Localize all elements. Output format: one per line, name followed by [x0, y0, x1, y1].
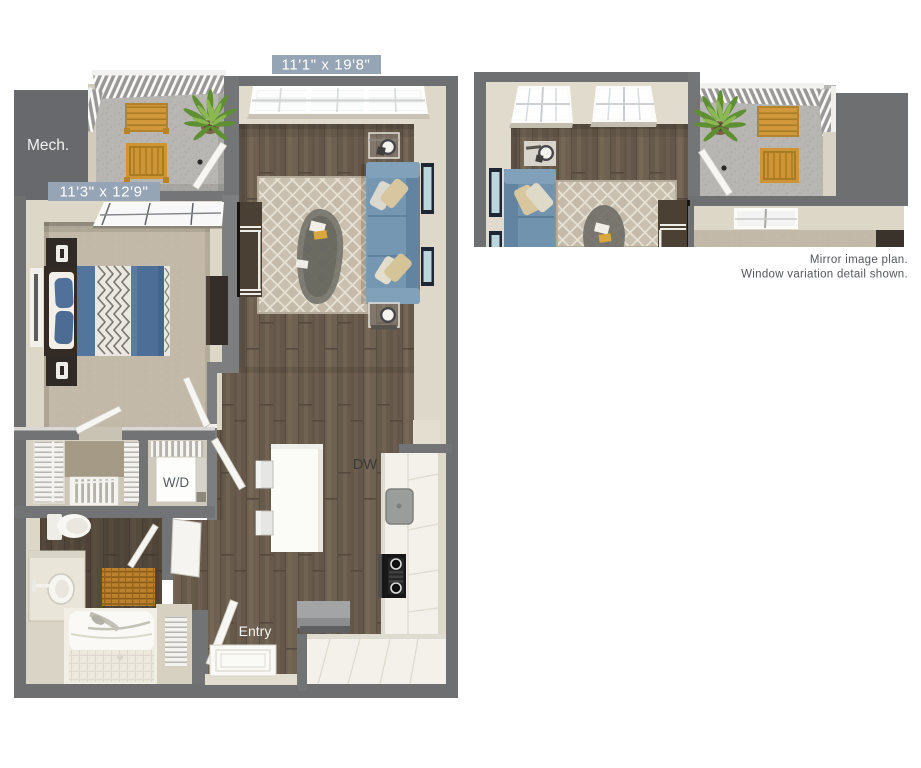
- svg-text:Window variation detail shown.: Window variation detail shown.: [741, 269, 908, 281]
- svg-text:11'1" x 19'8": 11'1" x 19'8": [282, 57, 371, 74]
- svg-text:W/D: W/D: [163, 475, 189, 490]
- svg-text:Entry: Entry: [239, 623, 272, 639]
- svg-text:Mirror image plan.: Mirror image plan.: [810, 254, 908, 266]
- svg-text:DW: DW: [353, 457, 377, 473]
- svg-text:11'3" x 12'9": 11'3" x 12'9": [60, 184, 149, 201]
- svg-text:Mech.: Mech.: [27, 137, 69, 154]
